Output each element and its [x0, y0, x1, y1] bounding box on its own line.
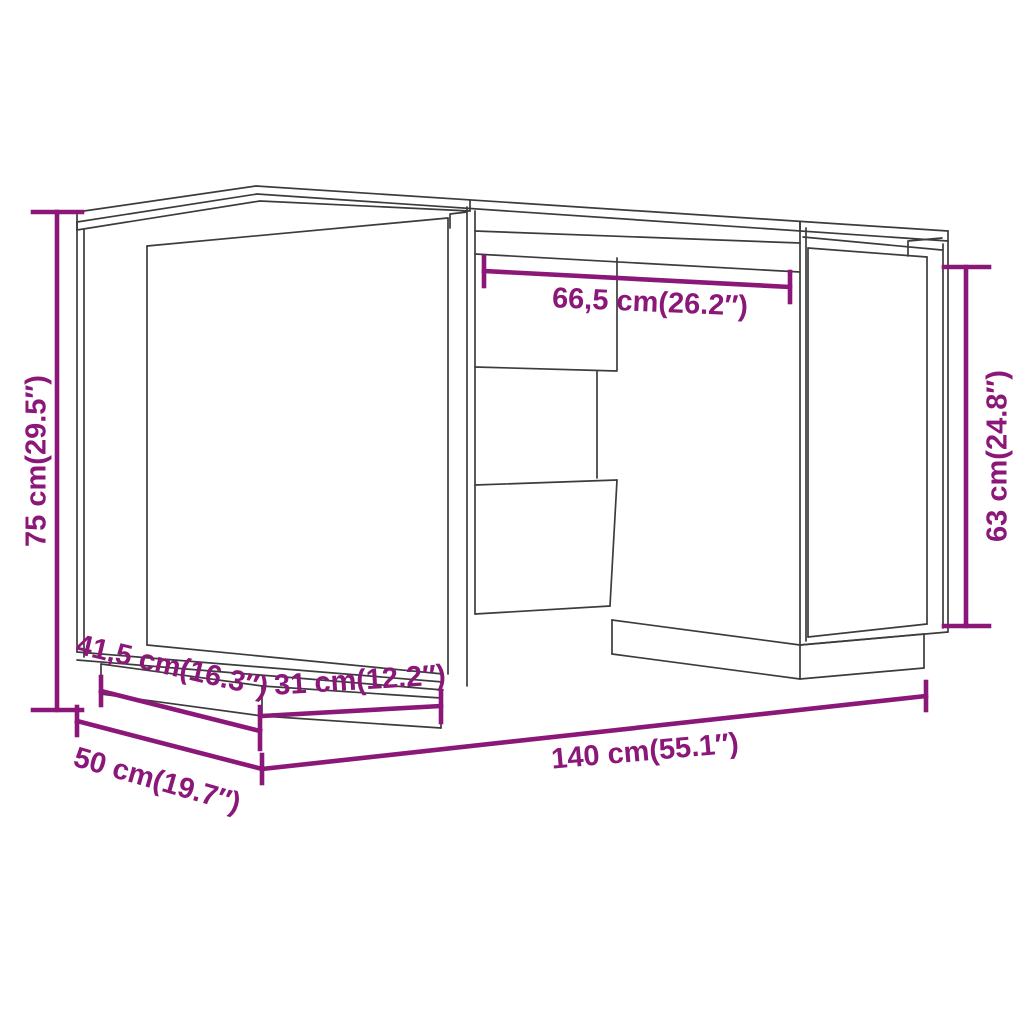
dimension-label-overall-height: 75 cm(29.5″) [21, 375, 54, 547]
left-cabinet [77, 207, 475, 690]
dimension-lines [33, 212, 989, 783]
dimension-label-cabinet-side-height: 63 cm(24.8″) [982, 370, 1015, 542]
dimension-diagram: 75 cm(29.5″) 66,5 cm(26.2″) 63 cm(24.8″)… [0, 0, 1024, 1024]
desk-diagram-svg [0, 0, 1024, 1024]
right-cabinet [800, 222, 948, 645]
desk-line-art [77, 186, 948, 728]
